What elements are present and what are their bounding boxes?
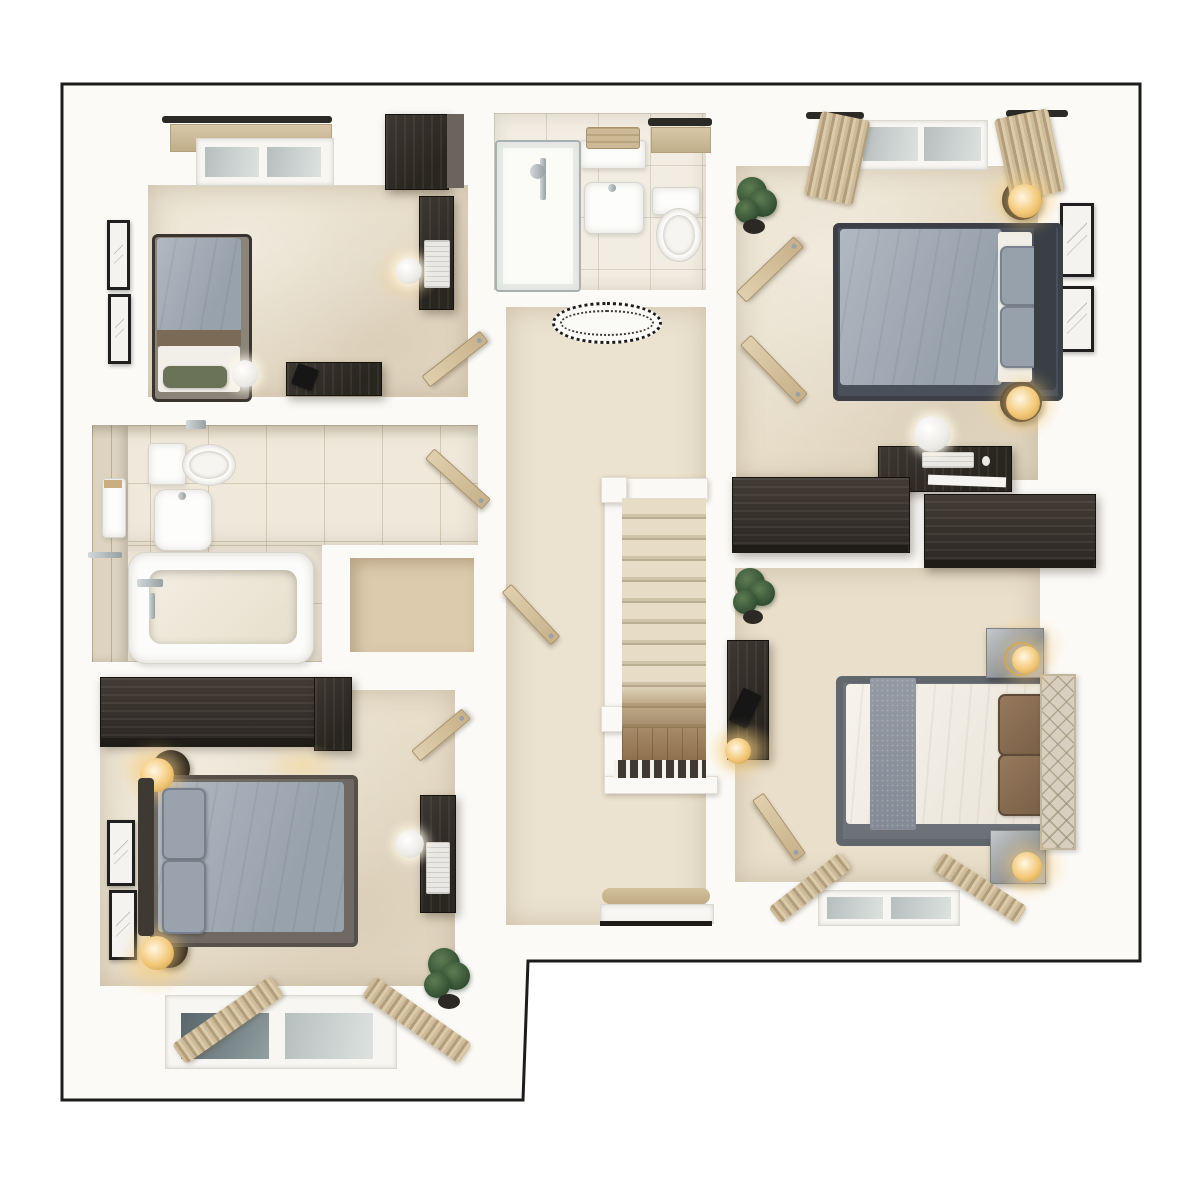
room-bedroom-bottom-left [62, 662, 498, 1100]
window-pane [891, 897, 951, 919]
wardrobe-front-edge [924, 560, 1094, 568]
bathtub-basin [149, 570, 297, 644]
plant [733, 568, 779, 630]
bedroom-br-window [818, 890, 960, 926]
desk-lamp-globe [396, 258, 422, 284]
toilet-roll-holder-icon [186, 420, 206, 429]
wardrobe-front-edge [100, 738, 314, 747]
cream-lattice-headboard [1040, 674, 1076, 850]
stair-lower-wood-floor [622, 728, 706, 761]
bedside-lamp-globe [1008, 184, 1042, 218]
room-shower-ensuite [478, 84, 735, 307]
dark-headboard [1034, 224, 1056, 390]
keyboard [426, 842, 450, 894]
keyboard [922, 452, 974, 468]
shower-enclosure [495, 140, 581, 292]
plant [424, 948, 474, 1014]
cabinet-wood-trim [104, 480, 122, 488]
gray-bed-runner [870, 678, 916, 830]
desk-sphere-lamp [914, 416, 950, 452]
bedside-lamp-globe [1006, 386, 1040, 420]
gold-desk-lamp [725, 738, 751, 764]
wall-shadow [92, 425, 478, 439]
wall-picture [107, 220, 130, 290]
wall-picture [108, 294, 131, 364]
bathroom-wall-tiles [92, 425, 128, 662]
laptop [424, 240, 450, 288]
gray-duvet [840, 229, 1002, 385]
window-bench-cushion [602, 888, 710, 904]
plant [735, 175, 781, 239]
desk-sphere-lamp [396, 830, 424, 858]
gold-globe-lamp [1012, 646, 1040, 674]
shower-head-icon [530, 164, 545, 179]
wall-picture [1060, 286, 1094, 352]
wardrobe-side-panel [447, 114, 464, 188]
room-bedroom-top-left [62, 84, 500, 414]
shower-window-rod [648, 118, 712, 126]
stair-spindle-balustrade [614, 760, 706, 778]
bath-shower-hose-icon [149, 593, 155, 619]
window-pane [863, 127, 918, 161]
basin-tap-icon [178, 492, 186, 500]
bathtub [128, 552, 314, 664]
bath-mixer-tap-icon [137, 579, 163, 587]
bed-footer-band [157, 330, 241, 346]
toilet-bowl [182, 444, 236, 486]
bedside-lamp-globe [140, 936, 174, 970]
stair-bottom-rail [604, 776, 718, 794]
basin-tap-icon [608, 184, 616, 192]
gray-pillow [162, 788, 206, 860]
shower-window-blind [651, 127, 711, 153]
gray-pillow [162, 860, 206, 934]
long-wardrobe [100, 677, 316, 745]
bedroom-tl-window [196, 138, 334, 186]
wardrobe-end-unit [314, 677, 352, 751]
towel-rail-icon [88, 552, 122, 558]
dark-headboard [138, 778, 154, 936]
oval-ceiling-spotlight-icon [552, 302, 662, 344]
floor-plan-render [0, 0, 1200, 1200]
candle-lamp [232, 360, 258, 388]
window-sill-shadow [600, 921, 712, 926]
room-landing-hallway [478, 288, 740, 968]
green-pillow [163, 366, 227, 388]
low-wardrobe [924, 494, 1096, 568]
mouse-icon [982, 456, 990, 466]
wall-picture [1060, 203, 1094, 277]
toilet-bowl [656, 208, 702, 262]
room-bedroom-bottom-right [720, 484, 1140, 961]
bedroom-tl-curtain-rod [162, 116, 332, 123]
gold-globe-lamp [1012, 852, 1042, 882]
window-pane [267, 147, 321, 177]
staircase-treads [622, 498, 706, 728]
window-pane [285, 1013, 373, 1059]
towels [586, 127, 640, 149]
wall-picture [107, 820, 135, 886]
cupboard-floor [350, 558, 474, 652]
single-bed-duvet [157, 238, 241, 332]
window-pane [924, 127, 981, 161]
window-pane [205, 147, 259, 177]
stair-banister-rail [604, 480, 624, 780]
bedroom-tl-wardrobe [385, 114, 449, 190]
window-pane [827, 897, 883, 919]
bedroom-tr-window [856, 120, 988, 170]
toilet-cistern [148, 443, 186, 485]
